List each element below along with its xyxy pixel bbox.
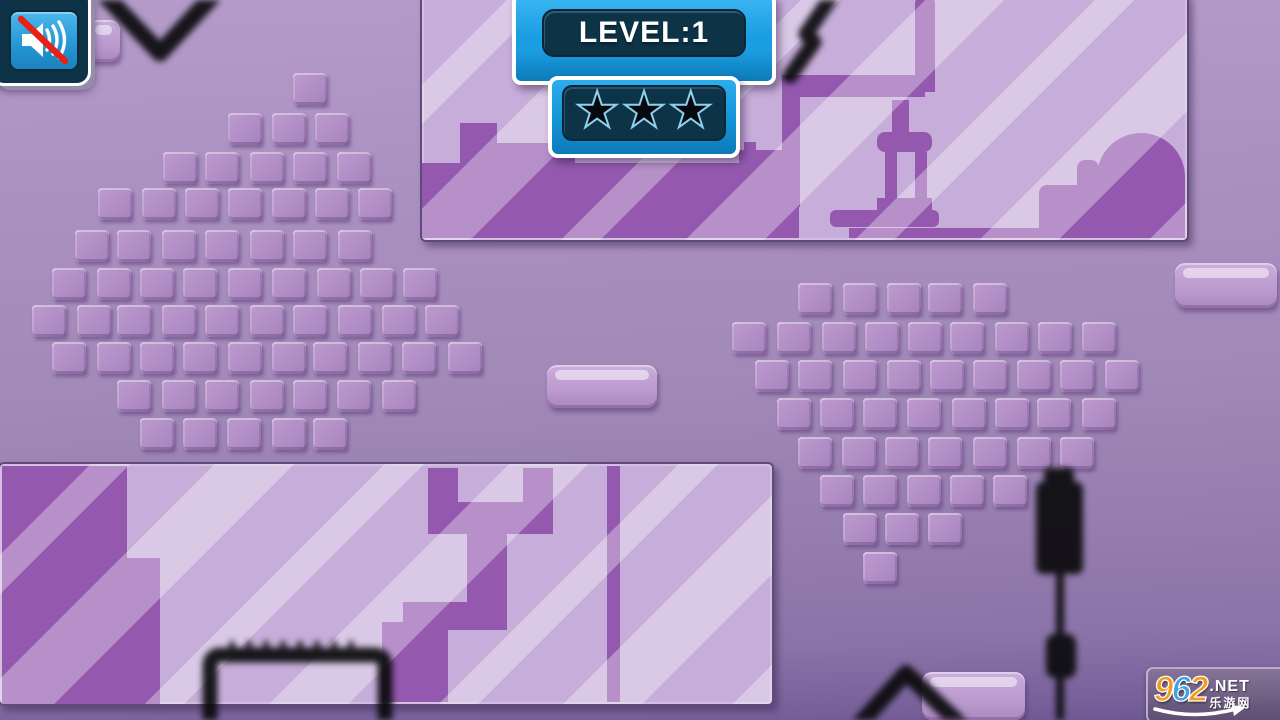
brick-tile[interactable]	[228, 342, 262, 374]
brick-tile[interactable]	[843, 360, 877, 392]
brick-tile[interactable]	[98, 188, 132, 220]
brick-tile[interactable]	[183, 418, 217, 450]
brick-tile[interactable]	[205, 152, 239, 184]
brick-tile[interactable]	[732, 322, 766, 354]
brick-tile[interactable]	[250, 230, 284, 262]
brick-tile[interactable]	[272, 268, 306, 300]
brick-tile[interactable]	[820, 398, 854, 430]
brick-tile[interactable]	[97, 342, 131, 374]
brick-tile[interactable]	[360, 268, 394, 300]
brick-tile[interactable]	[382, 380, 416, 412]
brick-tile[interactable]	[1017, 437, 1051, 469]
brick-tile[interactable]	[162, 230, 196, 262]
capsule-tile[interactable]	[547, 365, 657, 408]
brick-tile[interactable]	[162, 380, 196, 412]
brick-tile[interactable]	[777, 322, 811, 354]
brick-tile[interactable]	[798, 437, 832, 469]
level-banner: LEVEL:1	[512, 0, 776, 85]
brick-tile[interactable]	[183, 268, 217, 300]
capsule-tile[interactable]	[922, 672, 1025, 720]
sound-button-panel	[0, 0, 91, 86]
brick-tile[interactable]	[358, 342, 392, 374]
brick-tile[interactable]	[973, 283, 1007, 315]
brick-tile[interactable]	[75, 230, 109, 262]
brick-tile[interactable]	[337, 152, 371, 184]
brick-tile[interactable]	[117, 380, 151, 412]
brick-tile[interactable]	[338, 230, 372, 262]
brick-tile[interactable]	[117, 305, 151, 337]
brick-tile[interactable]	[272, 342, 306, 374]
brick-tile[interactable]	[887, 283, 921, 315]
brick-tile[interactable]	[250, 305, 284, 337]
brick-tile[interactable]	[1060, 360, 1094, 392]
brick-tile[interactable]	[250, 152, 284, 184]
brick-tile[interactable]	[205, 230, 239, 262]
brick-tile[interactable]	[843, 513, 877, 545]
brick-tile[interactable]	[358, 188, 392, 220]
game-screen: LEVEL:1 ★★★ 962 .NET 乐游网	[0, 0, 1280, 720]
brick-tile[interactable]	[887, 360, 921, 392]
brick-tile[interactable]	[52, 268, 86, 300]
brick-tile[interactable]	[1038, 322, 1072, 354]
brick-tile[interactable]	[313, 342, 347, 374]
brick-tile[interactable]	[1082, 322, 1116, 354]
brick-tile[interactable]	[448, 342, 482, 374]
brick-tile[interactable]	[163, 152, 197, 184]
brick-tile[interactable]	[798, 360, 832, 392]
brick-tile[interactable]	[228, 188, 262, 220]
brick-tile[interactable]	[1105, 360, 1139, 392]
brick-tile[interactable]	[973, 360, 1007, 392]
brick-tile[interactable]	[777, 398, 811, 430]
brick-tile[interactable]	[315, 188, 349, 220]
brick-tile[interactable]	[995, 322, 1029, 354]
brick-tile[interactable]	[338, 305, 372, 337]
brick-tile[interactable]	[843, 283, 877, 315]
brick-tile[interactable]	[250, 380, 284, 412]
brick-tile[interactable]	[1037, 398, 1071, 430]
brick-tile[interactable]	[272, 188, 306, 220]
star-row: ★★★	[562, 85, 726, 141]
brick-tile[interactable]	[993, 475, 1027, 507]
watermark-suffix: .NET	[1209, 678, 1249, 696]
brick-tile[interactable]	[1017, 360, 1051, 392]
watermark-badge: 962 .NET 乐游网	[1146, 667, 1280, 720]
brick-tile[interactable]	[863, 475, 897, 507]
brick-tile[interactable]	[885, 437, 919, 469]
brick-tile[interactable]	[425, 305, 459, 337]
brick-tile[interactable]	[382, 305, 416, 337]
brick-tile[interactable]	[293, 73, 327, 105]
brick-tile[interactable]	[820, 475, 854, 507]
brick-tile[interactable]	[293, 380, 327, 412]
brick-tile[interactable]	[140, 418, 174, 450]
brick-tile[interactable]	[140, 268, 174, 300]
brick-tile[interactable]	[973, 437, 1007, 469]
star-icon: ★	[575, 85, 620, 135]
brick-tile[interactable]	[337, 380, 371, 412]
brick-tile[interactable]	[755, 360, 789, 392]
brick-tile[interactable]	[822, 322, 856, 354]
brick-tile[interactable]	[205, 305, 239, 337]
brick-tile[interactable]	[97, 268, 131, 300]
brick-tile[interactable]	[293, 152, 327, 184]
stars-panel: ★★★	[548, 76, 740, 158]
capsule-tile[interactable]	[1175, 263, 1277, 308]
brick-tile[interactable]	[228, 113, 262, 145]
brick-tile[interactable]	[272, 113, 306, 145]
brick-tile[interactable]	[928, 513, 962, 545]
brick-tile[interactable]	[798, 283, 832, 315]
brick-tile[interactable]	[950, 322, 984, 354]
sound-toggle-button[interactable]	[9, 10, 79, 71]
brick-tile[interactable]	[952, 398, 986, 430]
brick-tile[interactable]	[185, 188, 219, 220]
brick-tile[interactable]	[995, 398, 1029, 430]
capsule-highlight	[1183, 268, 1269, 278]
brick-tile[interactable]	[907, 398, 941, 430]
capsule-highlight	[95, 25, 112, 35]
brick-tile[interactable]	[117, 230, 151, 262]
capsule-tile[interactable]	[87, 20, 120, 62]
brick-tile[interactable]	[228, 268, 262, 300]
brick-tile[interactable]	[32, 305, 66, 337]
capsule-highlight	[930, 677, 1017, 687]
star-icon: ★	[622, 85, 667, 135]
brick-tile[interactable]	[162, 305, 196, 337]
brick-tile[interactable]	[402, 342, 436, 374]
brick-tile[interactable]	[227, 418, 261, 450]
brick-tile[interactable]	[907, 475, 941, 507]
brick-tile[interactable]	[52, 342, 86, 374]
brick-tile[interactable]	[293, 305, 327, 337]
brick-tile[interactable]	[315, 113, 349, 145]
brick-tile[interactable]	[403, 268, 437, 300]
brick-tile[interactable]	[313, 418, 347, 450]
brick-tile[interactable]	[293, 230, 327, 262]
swoosh-arrow-icon	[1152, 703, 1252, 720]
brick-tile[interactable]	[928, 437, 962, 469]
brick-tile[interactable]	[865, 322, 899, 354]
brick-tile[interactable]	[863, 552, 897, 584]
brick-tile[interactable]	[908, 322, 942, 354]
brick-tile[interactable]	[183, 342, 217, 374]
brick-tile[interactable]	[1060, 437, 1094, 469]
brick-tile[interactable]	[885, 513, 919, 545]
brick-tile[interactable]	[205, 380, 239, 412]
brick-tile[interactable]	[77, 305, 111, 337]
brick-tile[interactable]	[142, 188, 176, 220]
capsule-highlight	[555, 370, 649, 380]
brick-tile[interactable]	[272, 418, 306, 450]
brick-tile[interactable]	[928, 283, 962, 315]
brick-tile[interactable]	[863, 398, 897, 430]
brick-tile[interactable]	[140, 342, 174, 374]
brick-tile[interactable]	[317, 268, 351, 300]
brick-tile[interactable]	[842, 437, 876, 469]
brick-tile[interactable]	[950, 475, 984, 507]
brick-tile[interactable]	[930, 360, 964, 392]
level-label: LEVEL:1	[542, 9, 746, 57]
star-icon: ★	[668, 85, 713, 135]
brick-tile[interactable]	[1082, 398, 1116, 430]
